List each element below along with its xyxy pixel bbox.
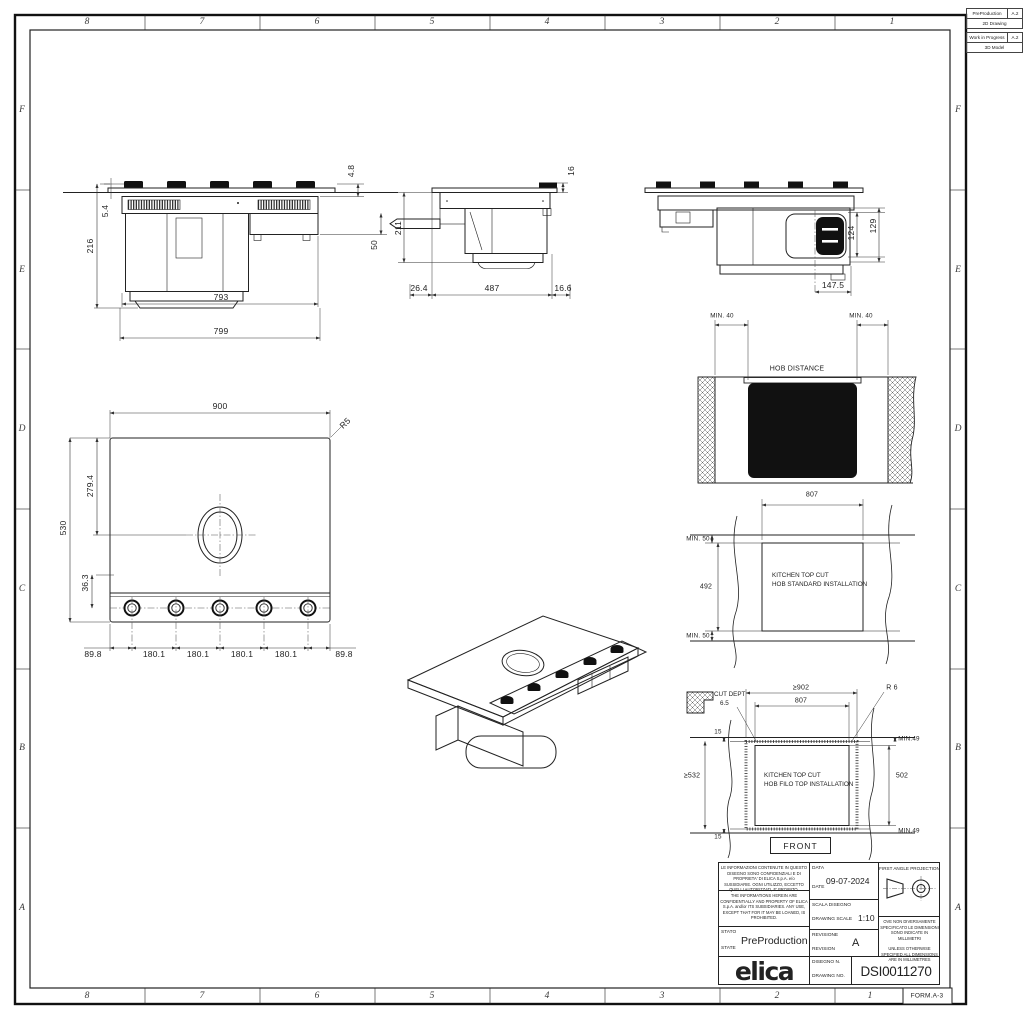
- revision-value: A: [852, 937, 859, 949]
- drawing-no-label-it: DISEGNO N.: [812, 959, 845, 966]
- drawing-no-label-cell: DISEGNO N. DRAWING NO.: [809, 956, 851, 985]
- side-top-offset-dim: 16: [566, 166, 576, 176]
- filo-inner-depth-dim: 502: [896, 773, 908, 780]
- filo-min-top-dim: MIN.49: [898, 736, 920, 743]
- zone-number: 5: [430, 991, 435, 1001]
- filo-cut-dept-text: CUT DEPT: [714, 691, 745, 700]
- confidentiality-note-it: LE INFORMAZIONI CONTENUTE IN QUESTO DISE…: [719, 863, 809, 890]
- zone-letter: F: [955, 105, 961, 115]
- zone-letter: D: [955, 424, 962, 434]
- drawing-sheet: .ln{fill:none;stroke:#222;stroke-width:1…: [0, 0, 1024, 1024]
- confidentiality-note-en: THE INFORMATIONS HEREIN ARE CONFIDENTIAL…: [719, 890, 809, 926]
- zone-number: 2: [775, 991, 780, 1001]
- zone-letter: E: [955, 265, 961, 275]
- front-inner-width-dim: 793: [214, 292, 229, 302]
- date-value: 09-07-2024: [826, 876, 869, 886]
- front-elevation-view: [63, 178, 398, 341]
- filo-cut-caption: KITCHEN TOP CUT HOB FILO TOP INSTALLATIO…: [764, 772, 853, 790]
- side-body-depth-dim: 487: [485, 283, 500, 293]
- plan-vent-center-dim: 279.4: [85, 475, 95, 497]
- front-body-height-dim: 211: [393, 221, 403, 235]
- standard-cut-width-dim: 807: [806, 492, 818, 499]
- zone-letter: F: [19, 105, 25, 115]
- filo-outer-width-dim: ≥902: [793, 685, 809, 692]
- revision-cell: REVISIONE REVISION A: [809, 929, 878, 956]
- plan-spacing-dim: 180.1: [187, 649, 209, 659]
- units-note-en: UNLESS OTHERWISE SPECIFIED ALL DIMENSION…: [879, 944, 940, 965]
- form-label: FORM.A-3: [911, 993, 944, 1000]
- plan-knob-offset-dim: 36.3: [80, 574, 90, 591]
- revision-label-it: REVISIONE: [812, 932, 838, 939]
- zone-number: 2: [775, 17, 780, 27]
- plan-width-dim: 900: [213, 401, 228, 411]
- brand-logo-cell: elica: [719, 956, 809, 985]
- front-orientation-box: FRONT: [770, 837, 831, 854]
- side-front-offset-dim: 26.4: [410, 283, 427, 293]
- status-table-2d: PreProduction A.2 2D Drawing: [966, 8, 1023, 29]
- hob-distance-min-left: MIN. 40: [710, 313, 733, 320]
- zone-letter: D: [19, 424, 26, 434]
- zone-number: 5: [430, 17, 435, 27]
- hob-distance-caption: HOB DISTANCE: [770, 366, 824, 373]
- elica-logo: elica: [735, 957, 793, 986]
- status-table-3d: Work in Progress A.2 3D Model: [966, 32, 1023, 53]
- state-value: PreProduction: [741, 935, 808, 947]
- hob-distance-min-right: MIN. 40: [849, 313, 872, 320]
- first-angle-projection-icon: [882, 874, 938, 904]
- status-rev: A.2: [1008, 9, 1022, 18]
- zone-letter: B: [19, 743, 25, 753]
- standard-cut-caption-line1: KITCHEN TOP CUT: [772, 572, 867, 581]
- zone-number: 1: [890, 17, 895, 27]
- scale-value: 1:10: [858, 913, 875, 923]
- zone-number: 3: [660, 17, 665, 27]
- zone-number: 4: [545, 991, 550, 1001]
- standard-cut-caption-line2: HOB STANDARD INSTALLATION: [772, 581, 867, 590]
- drawing-no-label-en: DRAWING NO.: [812, 973, 845, 980]
- plan-spacing-dim: 180.1: [275, 649, 297, 659]
- zone-letter: C: [19, 584, 25, 594]
- zone-letter: A: [19, 903, 25, 913]
- zone-letter: E: [19, 265, 25, 275]
- front-top-offset-dim: 4.8: [346, 165, 356, 177]
- date-label-it: DATA: [812, 865, 824, 872]
- zone-number: 8: [85, 17, 90, 27]
- status-rev: A.2: [1008, 33, 1022, 42]
- back-motor-center-dim: 147.5: [822, 280, 844, 290]
- zone-letter: C: [955, 584, 961, 594]
- front-outer-width-dim: 799: [214, 326, 229, 336]
- plan-view: [70, 410, 356, 651]
- side-rear-offset-dim: 16.6: [554, 283, 571, 293]
- state-label-it: STATO: [721, 929, 736, 936]
- filo-inner-width-dim: 807: [795, 698, 807, 705]
- units-note-it: OVE NON DIVERSAMENTE SPECIFICATO LE DIME…: [879, 917, 940, 944]
- scale-label-it: SCALA DISEGNO: [812, 902, 852, 909]
- zone-number: 4: [545, 17, 550, 27]
- zone-number: 7: [200, 991, 205, 1001]
- zone-number: 7: [200, 17, 205, 27]
- scale-cell: SCALA DISEGNO DRAWING SCALE 1:10: [809, 899, 878, 929]
- status-type: 3D Model: [967, 43, 1022, 52]
- title-block: LE INFORMAZIONI CONTENUTE IN QUESTO DISE…: [718, 862, 940, 985]
- filo-outer-depth-dim: ≥532: [684, 773, 700, 780]
- date-label-en: DATE: [812, 884, 824, 891]
- state-cell: STATO STATE PreProduction: [719, 926, 809, 956]
- scale-label-en: DRAWING SCALE: [812, 916, 852, 923]
- revision-label-en: REVISION: [812, 946, 838, 953]
- filo-edge-bottom-dim: 15: [714, 834, 721, 841]
- filo-min-bottom-dim: MIN.49: [898, 828, 920, 835]
- projection-label: FIRST ANGLE PROJECTION: [879, 866, 940, 871]
- filo-cut-dept-label: CUT DEPT 6.5: [714, 691, 745, 709]
- standard-cut-depth-dim: 492: [700, 584, 712, 591]
- standard-cut-min-bottom: MIN. 50: [686, 633, 709, 640]
- status-name: Work in Progress: [967, 33, 1008, 42]
- front-duct-height-dim: 50: [369, 240, 379, 250]
- isometric-view: [408, 616, 646, 768]
- standard-cut-min-top: MIN. 50: [686, 536, 709, 543]
- plan-spacing-dim: 89.8: [335, 649, 352, 659]
- plan-spacing-dim: 180.1: [143, 649, 165, 659]
- zone-number: 8: [85, 991, 90, 1001]
- side-elevation-view: [390, 183, 570, 300]
- filo-edge-top-dim: 15: [714, 729, 721, 736]
- drawing-no-value: DSI0011270: [860, 964, 931, 979]
- plan-spacing-dim: 180.1: [231, 649, 253, 659]
- date-cell: DATA DATE 09-07-2024: [809, 863, 878, 899]
- zone-number: 3: [660, 991, 665, 1001]
- sheet-frame: [15, 15, 966, 1004]
- front-orientation-label: FRONT: [783, 841, 817, 851]
- units-note-cell: OVE NON DIVERSAMENTE SPECIFICATO LE DIME…: [878, 916, 940, 956]
- front-glass-height-dim: 5.4: [100, 205, 110, 217]
- standard-cut-caption: KITCHEN TOP CUT HOB STANDARD INSTALLATIO…: [772, 572, 867, 590]
- back-motor-total-dim: 129: [868, 219, 878, 234]
- front-total-height-dim: 216: [85, 239, 95, 254]
- back-motor-height-dim: 124: [846, 226, 856, 241]
- hob-distance-view: [698, 320, 916, 483]
- zone-letter: A: [955, 903, 961, 913]
- filo-cut-dept-value: 6.5: [714, 700, 745, 709]
- state-label-en: STATE: [721, 945, 736, 952]
- filo-cut-caption-line1: KITCHEN TOP CUT: [764, 772, 853, 781]
- filo-cut-caption-line2: HOB FILO TOP INSTALLATION: [764, 781, 853, 790]
- plan-depth-dim: 530: [58, 521, 68, 536]
- zone-letter: B: [955, 743, 961, 753]
- zone-number: 6: [315, 991, 320, 1001]
- zone-number: 1: [868, 991, 873, 1001]
- status-type: 2D Drawing: [967, 19, 1022, 28]
- plan-spacing-dim: 89.8: [84, 649, 101, 659]
- projection-cell: FIRST ANGLE PROJECTION: [878, 863, 940, 916]
- zone-number: 6: [315, 17, 320, 27]
- filo-corner-radius-dim: R 6: [886, 685, 898, 692]
- status-name: PreProduction: [967, 9, 1008, 18]
